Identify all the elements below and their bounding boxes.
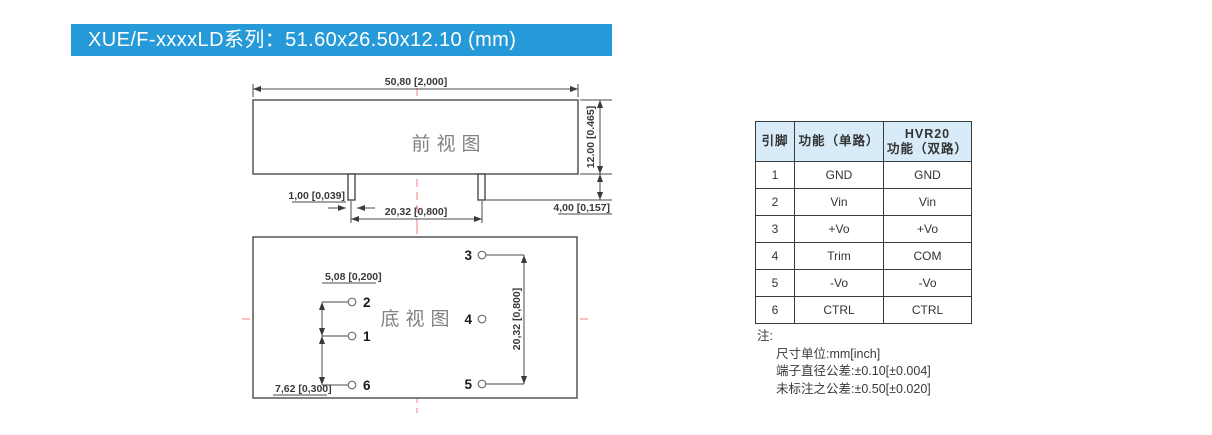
bottom-view-drawing: 底视图 2 1 6 5,08 [0,200] 7,62 [0,300] 3 4 … xyxy=(240,226,635,416)
pin-cell: 4 xyxy=(756,243,795,270)
dim-body-width-text: 50,80 [2,000] xyxy=(385,76,447,88)
front-pin-left xyxy=(348,174,355,200)
dim-pitch-1-6-text: 7,62 [0,300] xyxy=(275,383,332,395)
table-header-row: 引脚 功能（单路） HVR20 功能（双路） xyxy=(756,122,972,162)
dual-func-cell: GND xyxy=(884,162,972,189)
dim-pin-pitch-front-text: 20,32 [0,800] xyxy=(385,206,447,218)
col-header-dual-line2: 功能（双路） xyxy=(884,142,971,157)
col-header-pin: 引脚 xyxy=(756,122,795,162)
dim-pin-width-text: 1,00 [0,039] xyxy=(288,190,345,202)
pin-function-table: 引脚 功能（单路） HVR20 功能（双路） 1 GND GND 2 Vin V… xyxy=(755,121,972,324)
col-header-dual: HVR20 功能（双路） xyxy=(884,122,972,162)
dual-func-cell: +Vo xyxy=(884,216,972,243)
pin-1-pad xyxy=(348,332,356,340)
table-row: 2 Vin Vin xyxy=(756,189,972,216)
dim-pitch-3-5-text: 20,32 [0,800] xyxy=(511,288,523,350)
pin-3-pad xyxy=(478,251,486,259)
table-row: 4 Trim COM xyxy=(756,243,972,270)
pin-cell: 3 xyxy=(756,216,795,243)
table-row: 6 CTRL CTRL xyxy=(756,297,972,324)
pin-2-label: 2 xyxy=(363,295,371,310)
pin-4-pad xyxy=(478,315,486,323)
pin-5-pad xyxy=(478,380,486,388)
dual-func-cell: COM xyxy=(884,243,972,270)
series-title: XUE/F-xxxxLD系列：51.60x26.50x12.10 (mm) xyxy=(88,29,516,51)
single-func-cell: +Vo xyxy=(795,216,884,243)
table-row: 3 +Vo +Vo xyxy=(756,216,972,243)
note-general-tolerance: 未标注之公差:±0.50[±0.020] xyxy=(776,381,931,399)
dim-body-height-text: 12.00 [0.465] xyxy=(585,106,597,168)
dim-pitch-2-1-text: 5,08 [0,200] xyxy=(325,271,382,283)
pin-4-label: 4 xyxy=(464,312,472,327)
dim-pitch-2-1: 5,08 [0,200] xyxy=(322,271,382,283)
front-view-label: 前视图 xyxy=(411,133,486,155)
notes-title: 注: xyxy=(757,328,931,346)
single-func-cell: GND xyxy=(795,162,884,189)
dim-pin-length-text: 4,00 [0,157] xyxy=(553,202,610,214)
dim-pitch-1-6: 7,62 [0,300] xyxy=(273,383,332,395)
pin-2-pad xyxy=(348,298,356,306)
col-header-dual-line1: HVR20 xyxy=(884,127,971,142)
table-row: 5 -Vo -Vo xyxy=(756,270,972,297)
series-title-banner: XUE/F-xxxxLD系列：51.60x26.50x12.10 (mm) xyxy=(71,24,612,56)
dim-pitch-3-5: 20,32 [0,800] xyxy=(511,288,523,350)
col-header-single: 功能（单路） xyxy=(795,122,884,162)
dim-pin-length: 4,00 [0,157] xyxy=(485,174,612,214)
pin-6-label: 6 xyxy=(363,378,371,393)
dim-pin-width: 1,00 [0,039] xyxy=(288,190,375,208)
pin-5-label: 5 xyxy=(464,377,472,392)
dim-body-height: 12.00 [0.465] xyxy=(580,100,612,174)
notes-block: 注: 尺寸单位:mm[inch] 端子直径公差:±0.10[±0.004] 未标… xyxy=(757,328,931,398)
bottom-view-label: 底视图 xyxy=(380,308,455,330)
single-func-cell: Trim xyxy=(795,243,884,270)
dual-func-cell: -Vo xyxy=(884,270,972,297)
table-row: 1 GND GND xyxy=(756,162,972,189)
pin-cell: 2 xyxy=(756,189,795,216)
single-func-cell: Vin xyxy=(795,189,884,216)
single-func-cell: CTRL xyxy=(795,297,884,324)
pin-cell: 5 xyxy=(756,270,795,297)
pin-cell: 1 xyxy=(756,162,795,189)
pin-3-label: 3 xyxy=(464,248,472,263)
pin-cell: 6 xyxy=(756,297,795,324)
dual-func-cell: Vin xyxy=(884,189,972,216)
note-terminal-tolerance: 端子直径公差:±0.10[±0.004] xyxy=(776,363,931,381)
note-units: 尺寸单位:mm[inch] xyxy=(776,346,931,364)
dual-func-cell: CTRL xyxy=(884,297,972,324)
single-func-cell: -Vo xyxy=(795,270,884,297)
dim-body-width: 50,80 [2,000] xyxy=(253,76,578,97)
front-view-drawing: 50,80 [2,000] 12.00 [0.465] 4,00 [0,157]… xyxy=(240,70,635,235)
front-pin-right xyxy=(478,174,485,200)
pin-1-label: 1 xyxy=(363,329,371,344)
pin-6-pad xyxy=(348,381,356,389)
